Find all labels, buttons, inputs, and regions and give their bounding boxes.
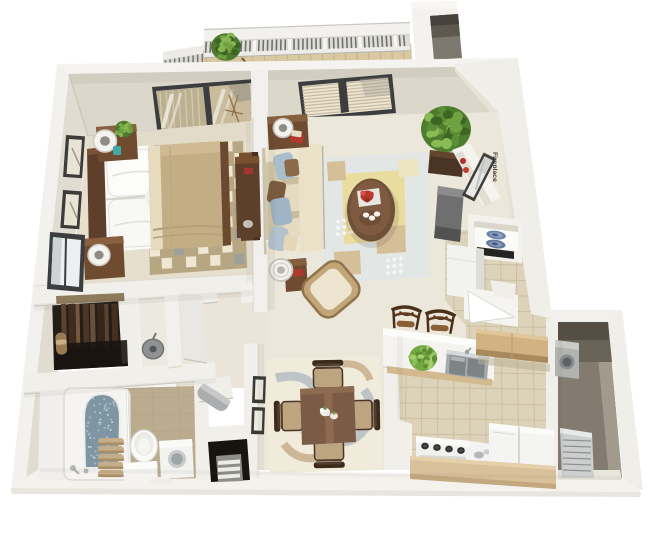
svg-text:Fireplace: Fireplace [491,152,498,182]
